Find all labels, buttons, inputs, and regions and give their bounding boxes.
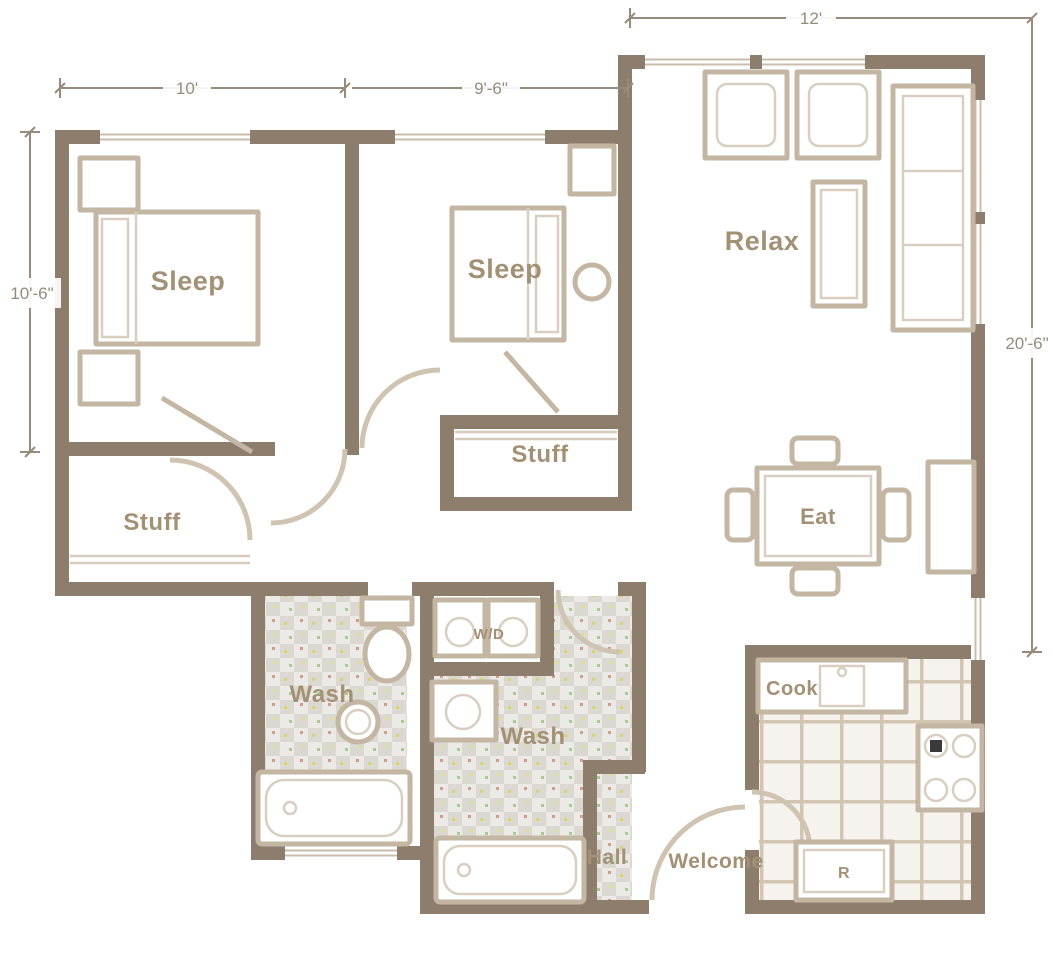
side-table — [575, 265, 609, 299]
room-label-kitchen: Cook — [766, 678, 818, 700]
toilet — [362, 598, 412, 681]
room-label-living: Relax — [725, 226, 800, 256]
armchair — [705, 72, 787, 158]
dim-living-width: 12' — [625, 4, 1037, 32]
dim-bedroom1-depth: 10'-6" — [3, 127, 61, 457]
dining-chair — [792, 568, 838, 594]
room-label-laundry: W/D — [474, 626, 505, 643]
window-living-1 — [645, 55, 750, 69]
nightstand — [570, 146, 614, 194]
room-label-closet2: Stuff — [511, 441, 569, 468]
room-label-dining: Eat — [800, 504, 836, 529]
closet1-door-arc — [170, 460, 250, 540]
dim-living-depth: 20'-6" — [1000, 18, 1053, 657]
window-dining-right — [971, 598, 985, 660]
dining-chair — [727, 490, 753, 540]
window-bedroom1 — [100, 130, 250, 144]
dining-chair — [883, 490, 909, 540]
floor-plan-canvas: 10' 9'-6" 12' 10'-6" — [0, 0, 1053, 961]
nightstand — [80, 158, 138, 210]
dim-label-bedroom2-width: 9'-6" — [474, 79, 508, 98]
bedroom1-door-arc — [271, 449, 345, 523]
floor-plan-drawing: 10' 9'-6" 12' 10'-6" — [0, 0, 1053, 961]
coffee-table — [813, 182, 865, 306]
sideboard — [928, 462, 974, 572]
sink — [338, 702, 378, 742]
room-label-refrigerator: R — [838, 865, 850, 882]
dining-chair — [792, 438, 838, 464]
room-label-closet1: Stuff — [123, 509, 181, 536]
stove — [918, 726, 982, 810]
window-living-2 — [762, 55, 865, 69]
bathtub — [258, 772, 410, 844]
bathtub — [436, 838, 584, 902]
dim-bedroom1-width: 10' — [55, 74, 350, 102]
dim-label-living-depth: 20'-6" — [1005, 334, 1048, 353]
window-bathroom1 — [285, 846, 397, 860]
vanity-sink — [432, 682, 496, 740]
bedroom2-door-arc — [362, 370, 440, 448]
room-label-bath2: Wash — [500, 723, 565, 750]
room-label-bedroom2: Sleep — [468, 254, 543, 284]
window-bedroom2 — [395, 130, 545, 144]
room-label-entry: Welcome — [668, 850, 763, 873]
room-label-bedroom1: Sleep — [151, 266, 226, 296]
closet-door-line — [505, 352, 558, 412]
bedroom1-furniture — [80, 158, 258, 452]
dim-label-bedroom1-width: 10' — [176, 79, 198, 98]
dim-label-living-width: 12' — [800, 9, 822, 28]
sofa — [893, 86, 973, 330]
nightstand — [80, 352, 138, 404]
dim-label-bedroom1-depth: 10'-6" — [10, 284, 53, 303]
room-label-hall: Hall — [587, 846, 628, 869]
armchair — [797, 72, 879, 158]
room-label-bath1: Wash — [289, 681, 354, 708]
dim-bedroom2-width: 9'-6" — [352, 74, 633, 102]
